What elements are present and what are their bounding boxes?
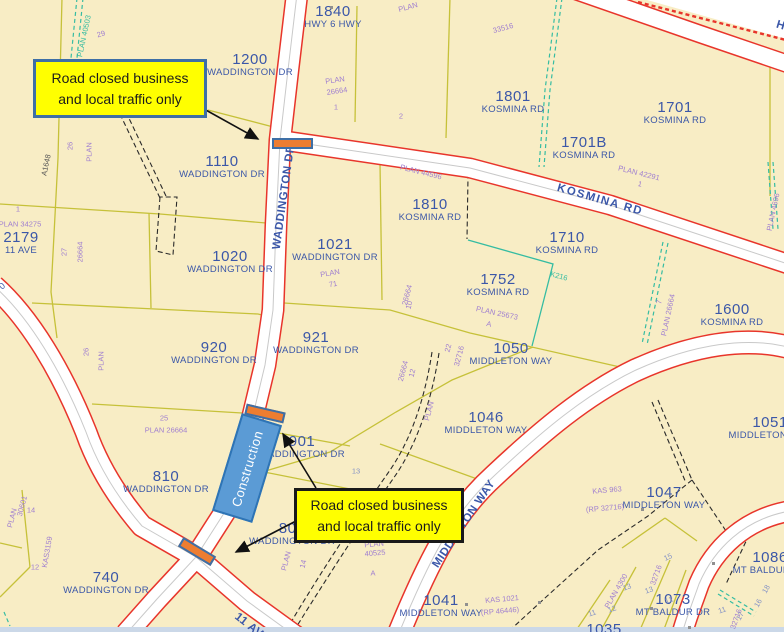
callout-text-line2: and local traffic only <box>58 89 181 110</box>
road-closure-bar-north <box>272 138 313 149</box>
callout-text-line1: Road closed business <box>311 495 448 516</box>
construction-zone-label: Construction <box>228 428 265 508</box>
callout-road-closed-north: Road closed business and local traffic o… <box>33 59 207 118</box>
map-bottom-strip <box>0 627 784 632</box>
callout-road-closed-south: Road closed business and local traffic o… <box>294 488 464 543</box>
callout-text-line2: and local traffic only <box>317 516 440 537</box>
callout-text-line1: Road closed business <box>52 68 189 89</box>
map-view[interactable]: 1840HWY 6 HWY1200WADDINGTON DR1110WADDIN… <box>0 0 784 632</box>
